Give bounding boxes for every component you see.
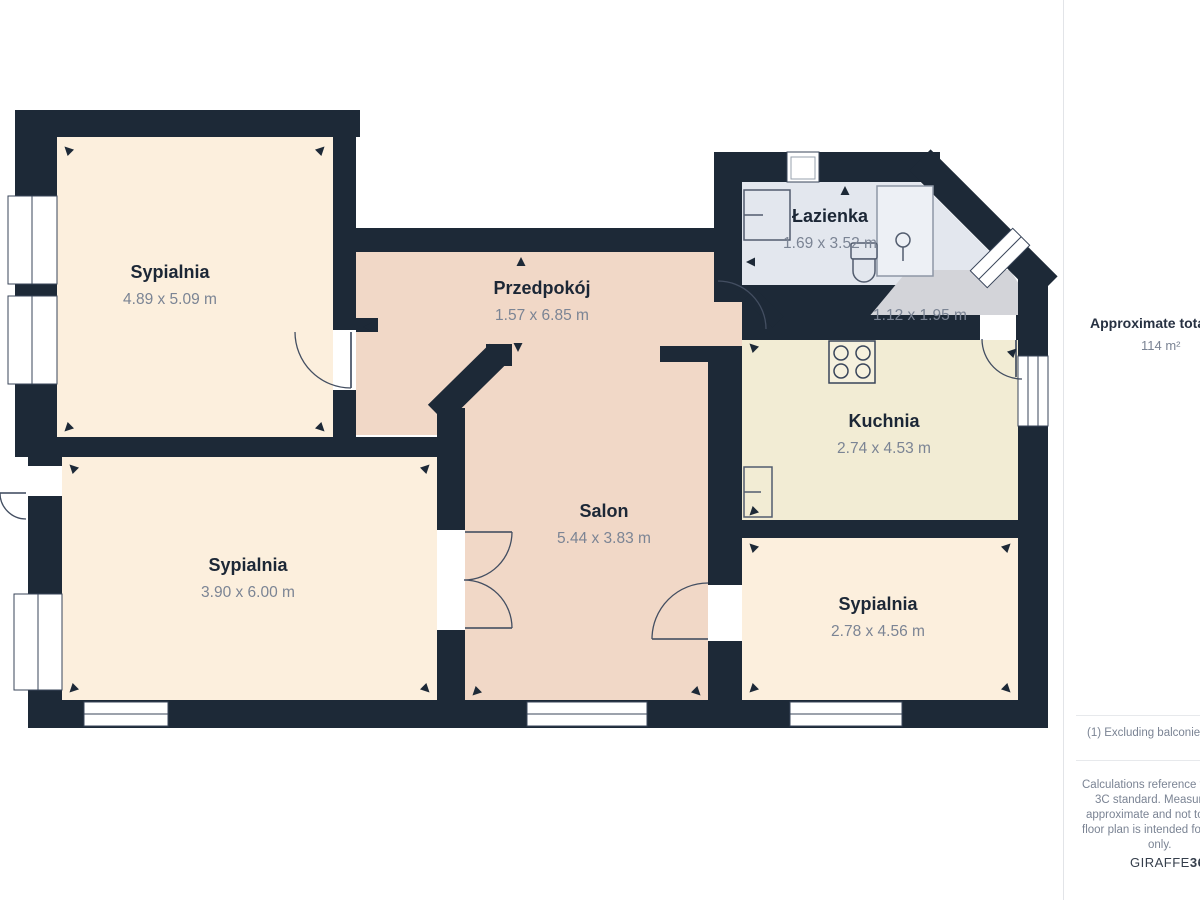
disclaimer-line-1: Calculations reference the RIC xyxy=(1082,778,1200,793)
info-sidebar xyxy=(1063,0,1200,900)
window-bedroom3-bottom xyxy=(790,702,902,726)
brand-name: GIRAFFE xyxy=(1130,855,1190,870)
bedroom-1-floor xyxy=(57,137,333,440)
stove-icon xyxy=(829,341,875,383)
salon-name: Salon xyxy=(579,501,628,521)
disclaimer-line-3: approximate and not to scal xyxy=(1086,808,1200,823)
divider-bottom xyxy=(1076,760,1200,761)
window-bedroom1-left-lower xyxy=(8,296,57,384)
shower-icon xyxy=(877,186,933,276)
bathroom-dims: 1.69 x 3.52 m xyxy=(783,235,877,252)
window-bedroom2-left xyxy=(14,594,62,690)
wc-dims: 1.12 x 1.95 m xyxy=(873,307,967,324)
bedroom-2-dims: 3.90 x 6.00 m xyxy=(201,584,295,601)
bedroom-1-name: Sypialnia xyxy=(130,262,210,282)
window-bedroom2-bottom xyxy=(84,702,168,726)
kitchen-dims: 2.74 x 4.53 m xyxy=(837,440,931,457)
footnote: (1) Excluding balconies and xyxy=(1087,726,1200,741)
hallway-dims: 1.57 x 6.85 m xyxy=(495,307,589,324)
brand-suffix: 360 xyxy=(1190,855,1200,870)
window-kitchen-right xyxy=(1018,356,1048,426)
bedroom-2-name: Sypialnia xyxy=(208,555,288,575)
total-area-label: Approximate total area xyxy=(1090,315,1200,331)
divider-top xyxy=(1076,715,1200,716)
bedroom-2-floor xyxy=(62,457,437,700)
window-bedroom1-left-upper xyxy=(8,196,57,284)
bathroom-name: Łazienka xyxy=(792,206,869,226)
bedroom-3-name: Sypialnia xyxy=(838,594,918,614)
disclaimer-line-5: only. xyxy=(1148,838,1171,853)
kitchen-name: Kuchnia xyxy=(848,411,920,431)
hallway-name: Przedpokój xyxy=(493,278,590,298)
bedroom-3-dims: 2.78 x 4.56 m xyxy=(831,623,925,640)
disclaimer-line-2: 3C standard. Measurement xyxy=(1095,793,1200,808)
kitchen-sink-icon xyxy=(744,467,772,517)
salon-dims: 5.44 x 3.83 m xyxy=(557,530,651,547)
bedroom-1-dims: 4.89 x 5.09 m xyxy=(123,291,217,308)
bedroom-3-floor xyxy=(742,536,1018,702)
disclaimer-line-4: floor plan is intended for illus xyxy=(1082,823,1200,838)
total-area-value: 114 m² xyxy=(1141,338,1181,353)
entrance-opening xyxy=(787,152,819,182)
giraffe360-logo: GIRAFFE360 xyxy=(1130,855,1200,870)
floor-plan: Sypialnia 4.89 x 5.09 m Przedpokój 1.57 … xyxy=(0,0,1200,900)
window-salon-bottom xyxy=(527,702,647,726)
